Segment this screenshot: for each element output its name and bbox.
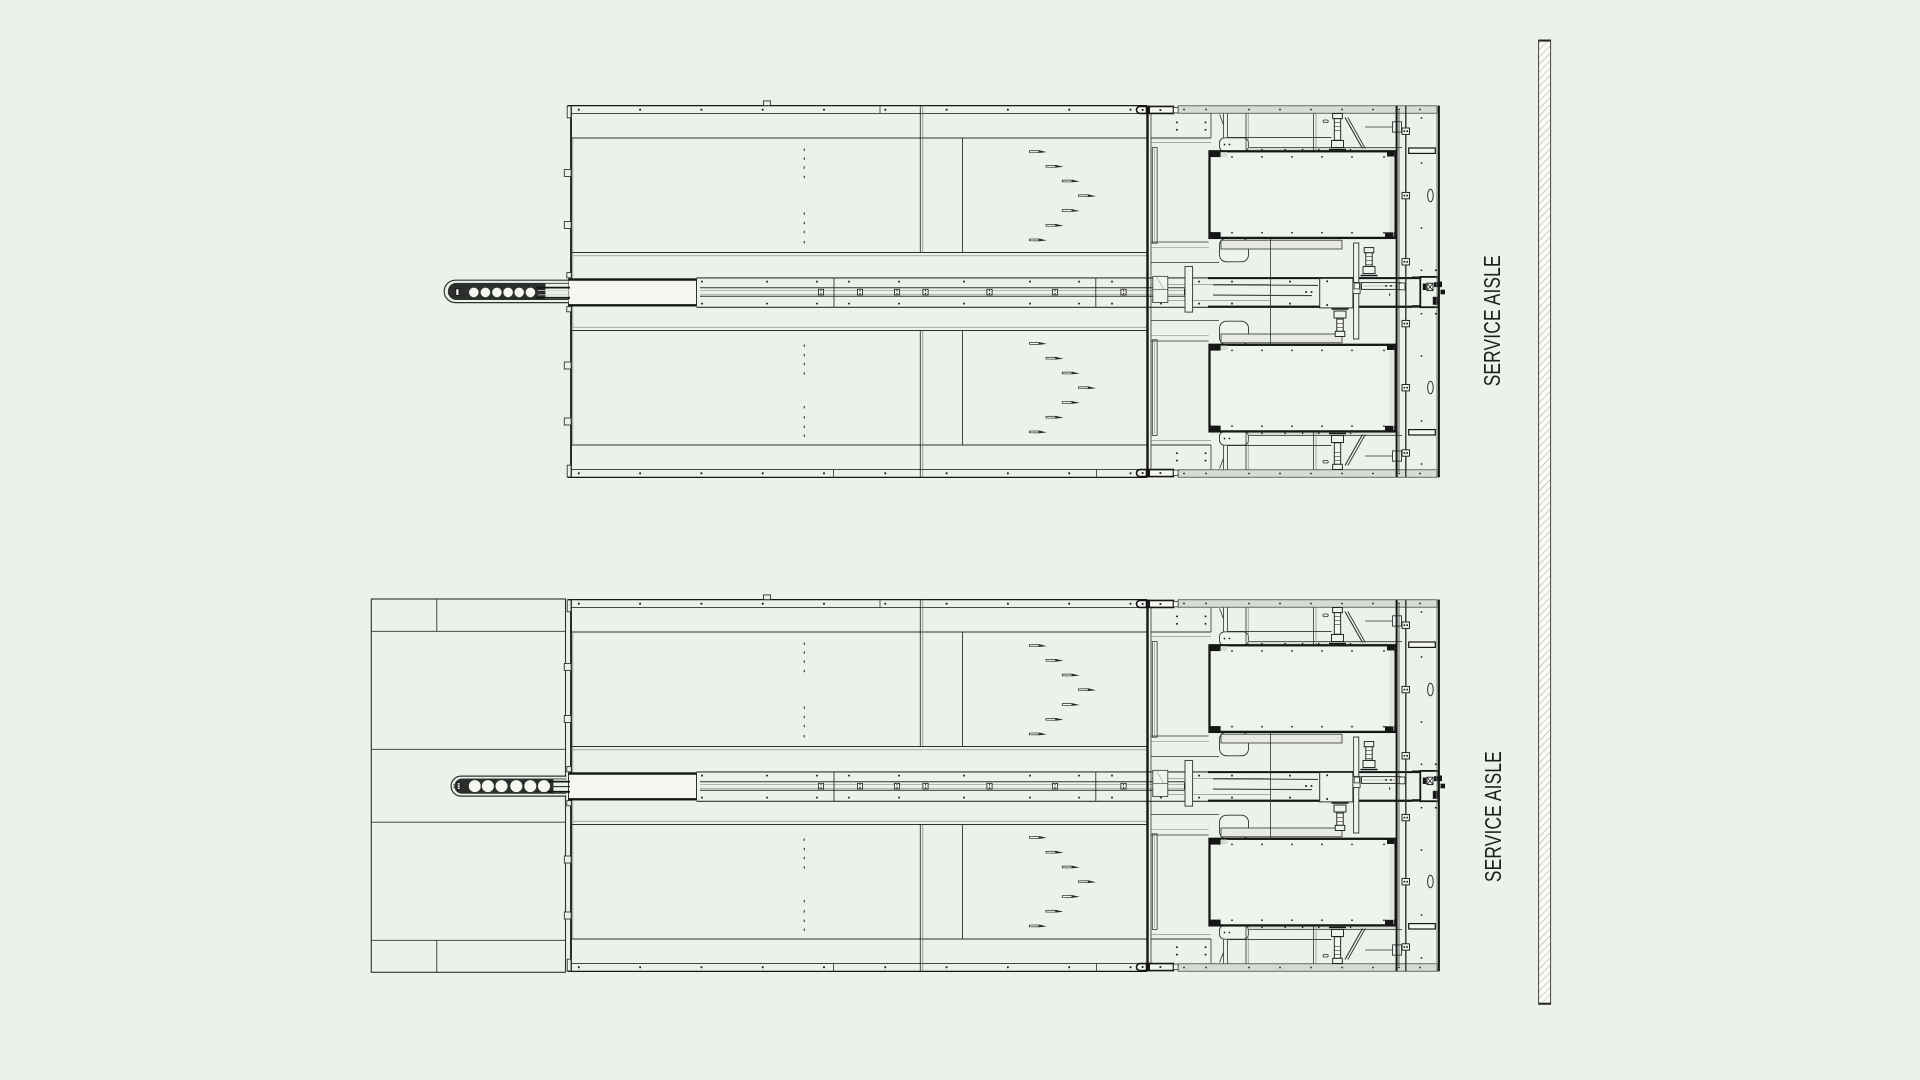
svg-text:SERVICE AISLE: SERVICE AISLE [1479,255,1505,386]
svg-text:SERVICE AISLE: SERVICE AISLE [1480,751,1506,882]
